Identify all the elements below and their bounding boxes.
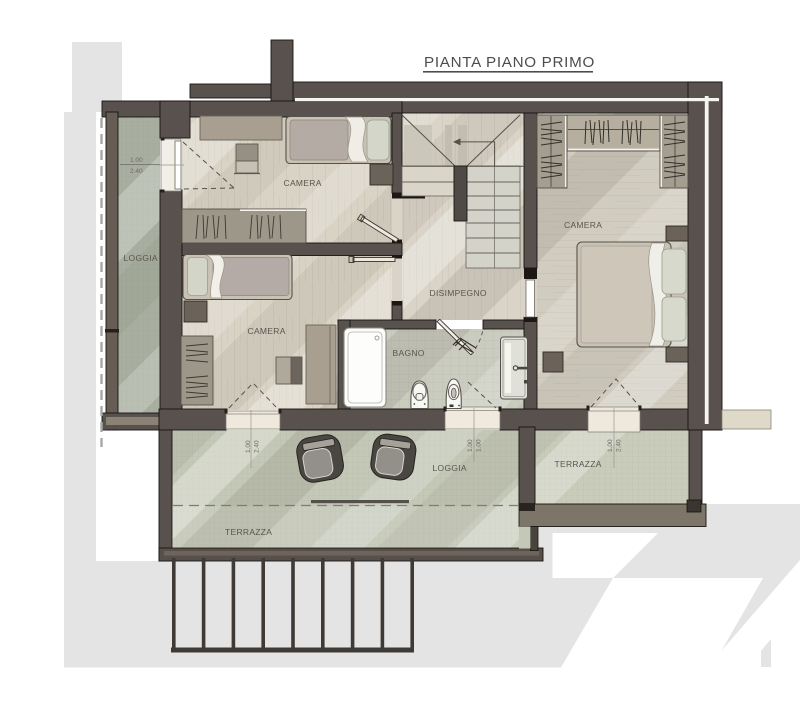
svg-text:CAMERA: CAMERA (248, 326, 286, 336)
svg-text:1.00: 1.00 (607, 439, 614, 452)
svg-text:CAMERA: CAMERA (284, 178, 322, 188)
svg-text:PIANTA PIANO PRIMO: PIANTA PIANO PRIMO (424, 54, 595, 71)
svg-text:1.00: 1.00 (467, 439, 474, 452)
svg-text:2.40: 2.40 (616, 439, 623, 452)
svg-text:1.00: 1.00 (476, 439, 483, 452)
svg-text:LOGGIA: LOGGIA (433, 463, 467, 473)
svg-text:LOGGIA: LOGGIA (124, 253, 158, 263)
svg-text:BAGNO: BAGNO (393, 348, 425, 358)
svg-text:2.40: 2.40 (130, 168, 143, 175)
svg-text:1.00: 1.00 (130, 157, 143, 164)
svg-text:TERRAZZA: TERRAZZA (225, 527, 272, 537)
svg-text:2.40: 2.40 (254, 440, 261, 453)
svg-text:CAMERA: CAMERA (564, 220, 602, 230)
svg-text:TERRAZZA: TERRAZZA (555, 459, 602, 469)
svg-text:DISIMPEGNO: DISIMPEGNO (430, 288, 487, 298)
